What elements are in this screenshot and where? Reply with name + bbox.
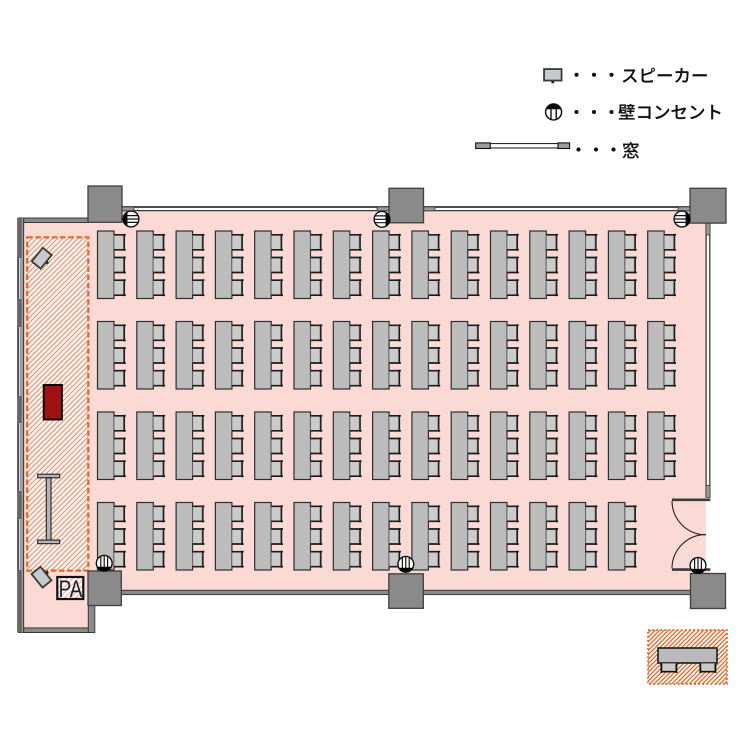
svg-text:PA: PA: [59, 576, 83, 603]
